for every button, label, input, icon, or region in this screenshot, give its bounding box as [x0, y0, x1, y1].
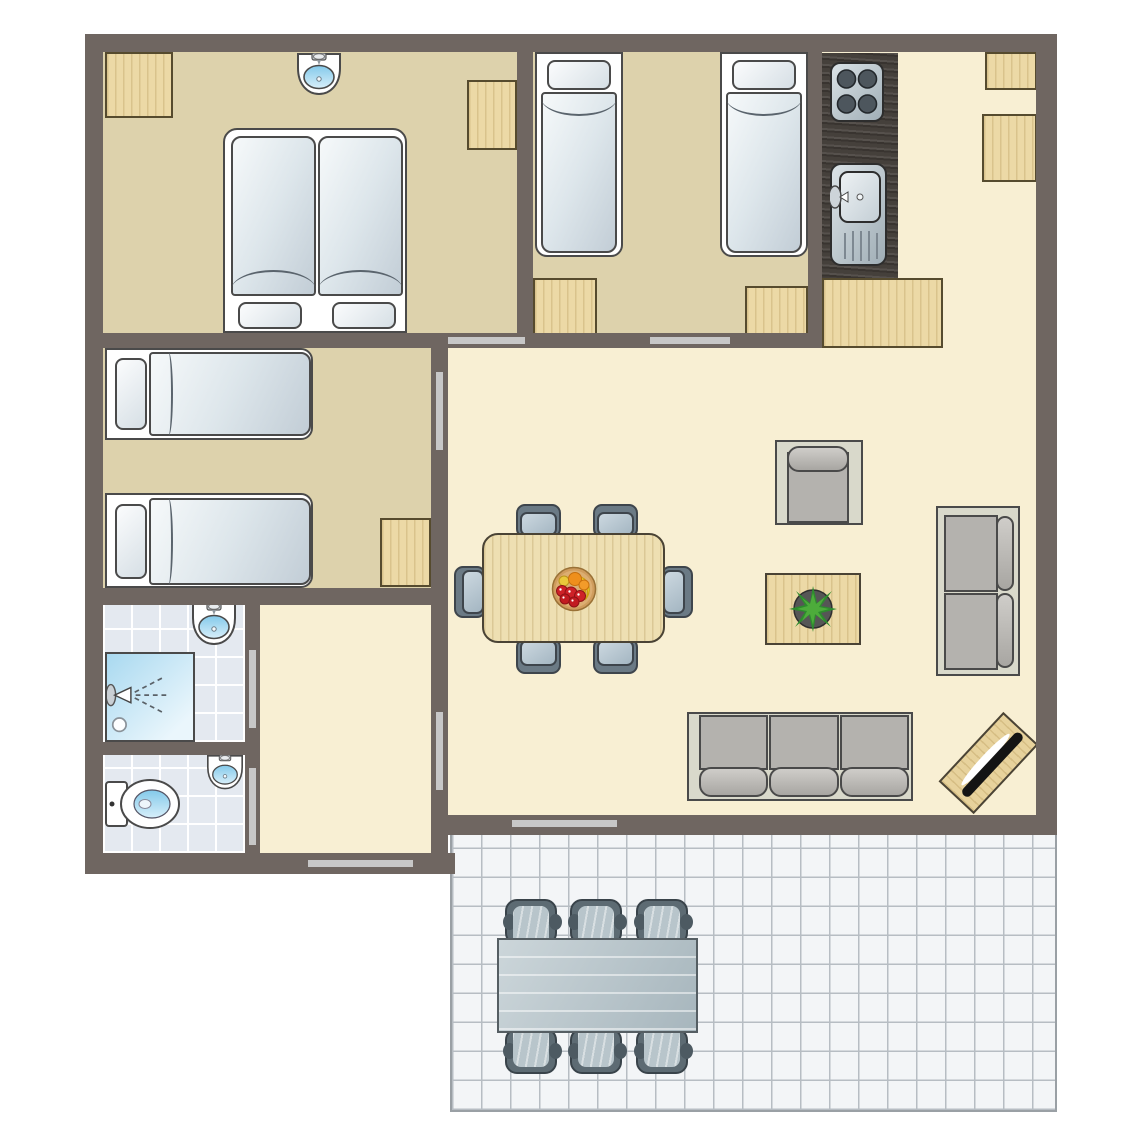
wall-bedroom2-kitchen [808, 52, 822, 333]
garden-chair [505, 1028, 557, 1074]
pillow [238, 302, 302, 329]
blanket-fold [155, 498, 173, 585]
dining-chair [661, 566, 693, 618]
armchair-cushion [787, 446, 849, 472]
mattress [149, 498, 311, 585]
sofa-seat [840, 715, 909, 770]
sofa-back-cushion [996, 593, 1014, 668]
door-toilet [249, 768, 256, 845]
pillow [115, 358, 147, 430]
door-bedroom-2 [650, 337, 730, 344]
fruit-bowl [551, 566, 597, 612]
dining-chair [516, 638, 561, 674]
door-entrance [308, 860, 413, 867]
hallway-floor [260, 605, 431, 853]
two-seat-sofa [936, 506, 1020, 676]
toilet-symbol [105, 778, 181, 830]
cabinet [985, 52, 1037, 90]
sofa-front-cushion [769, 767, 839, 797]
armchair [775, 440, 863, 525]
single-bed [105, 493, 313, 588]
blanket-fold [155, 352, 173, 436]
blanket-fold [541, 98, 617, 116]
cabinet [105, 52, 173, 118]
plant-symbol [787, 583, 839, 635]
blanket-fold [726, 98, 802, 116]
wall-bedroom3-south [103, 588, 448, 605]
nightstand [533, 278, 597, 335]
wall-left [85, 34, 103, 874]
sofa-seat [699, 715, 768, 770]
sofa-front-cushion [699, 767, 768, 797]
blanket-fold [231, 270, 316, 290]
blanket-fold [318, 270, 403, 290]
mattress [318, 136, 403, 296]
sofa-seat [769, 715, 839, 770]
wall-top [85, 34, 1057, 52]
three-seat-sofa [687, 712, 913, 801]
floor-plan [0, 0, 1145, 1145]
door-terrace [512, 820, 617, 827]
pillow [732, 60, 796, 90]
mattress [726, 92, 802, 253]
sofa-front-cushion [840, 767, 909, 797]
garden-table [497, 938, 698, 1033]
cabinet [467, 80, 517, 150]
mattress [149, 352, 311, 436]
door-bedroom-3 [436, 372, 443, 450]
nightstand [745, 286, 808, 335]
door-bathroom [249, 650, 256, 728]
sofa-back-cushion [996, 516, 1014, 591]
pillow [115, 504, 147, 579]
single-bed [720, 52, 808, 257]
wall-bedroom1-bedroom2 [517, 52, 533, 333]
cabinet [982, 114, 1037, 182]
door-bedroom-1 [448, 337, 525, 344]
sofa-seat [944, 515, 998, 592]
single-bed [105, 348, 313, 440]
nightstand [380, 518, 431, 587]
shower-symbol [105, 652, 195, 742]
pillow [547, 60, 611, 90]
single-bed [535, 52, 623, 257]
sofa-seat [944, 593, 998, 670]
cabinet [822, 278, 943, 348]
hob-symbol [830, 62, 884, 122]
double-bed [223, 128, 407, 333]
washbasin-symbol [186, 603, 242, 647]
kitchen-sink-symbol [830, 163, 887, 266]
dining-chair [593, 638, 638, 674]
garden-chair [570, 1028, 622, 1074]
wall-right [1036, 34, 1057, 835]
door-hallway-living [436, 712, 443, 790]
mattress [231, 136, 316, 296]
mattress [541, 92, 617, 253]
pillow [332, 302, 396, 329]
garden-chair [636, 1028, 688, 1074]
washbasin-symbol [202, 755, 248, 793]
washbasin-symbol [291, 53, 347, 97]
wall-bathroom-toilet [103, 742, 260, 755]
